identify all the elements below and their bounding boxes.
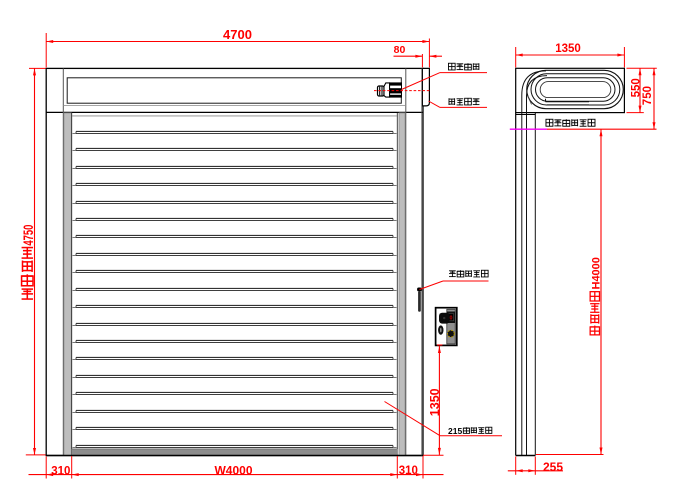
svg-text:750: 750 xyxy=(642,86,654,105)
svg-text:0: 0 xyxy=(450,316,453,322)
svg-text:4750: 4750 xyxy=(21,225,36,246)
svg-text:80: 80 xyxy=(394,44,406,56)
svg-text:1350: 1350 xyxy=(428,388,442,416)
svg-text:W4000: W4000 xyxy=(214,463,252,477)
svg-text:H4000: H4000 xyxy=(590,257,602,289)
svg-text:4700: 4700 xyxy=(223,27,252,42)
svg-text:310: 310 xyxy=(51,465,70,477)
svg-text:215: 215 xyxy=(448,426,462,436)
svg-text:255: 255 xyxy=(543,460,563,474)
svg-text:550: 550 xyxy=(630,78,642,97)
svg-text:310: 310 xyxy=(399,465,418,477)
svg-text:1350: 1350 xyxy=(555,43,581,55)
